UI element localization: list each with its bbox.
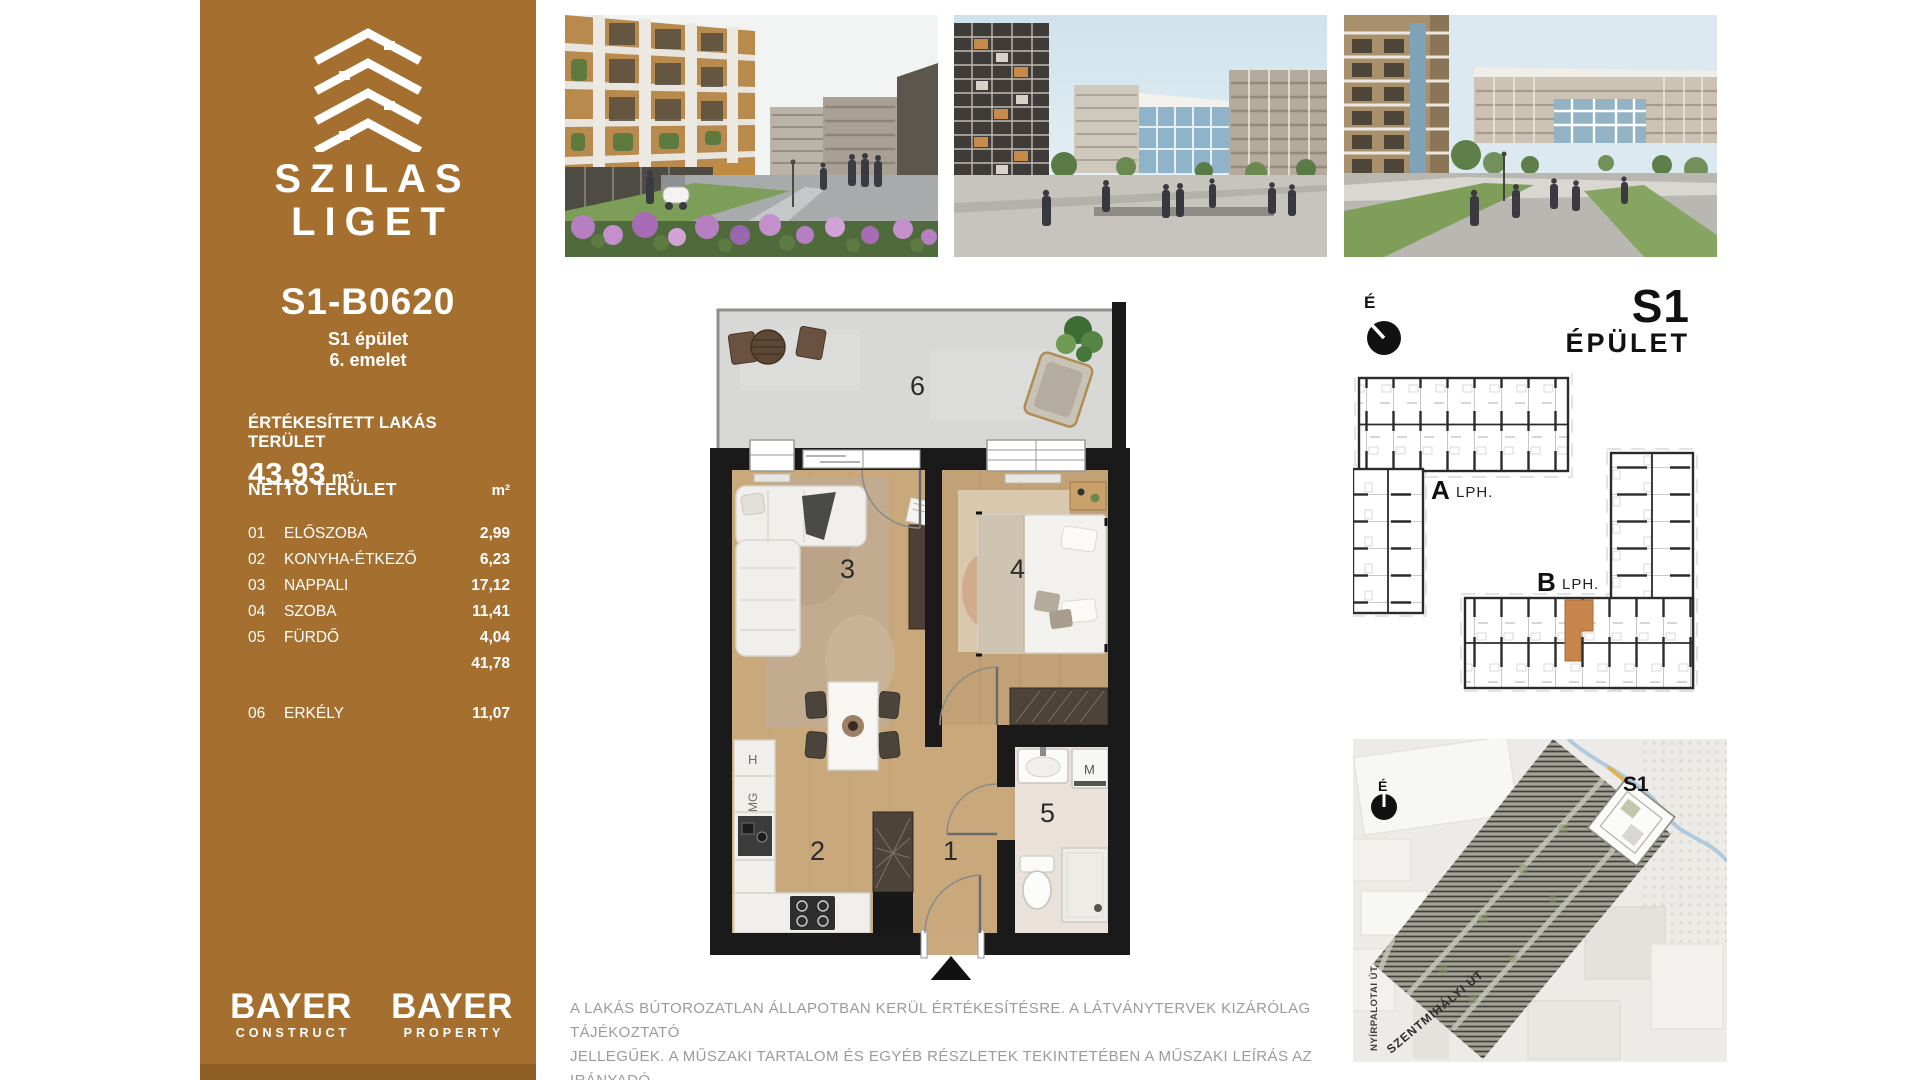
- wing-a-vertical: [1353, 469, 1423, 613]
- floor-line: 6. emelet: [200, 350, 536, 371]
- total-area: 41,78: [471, 655, 510, 673]
- table-total-row: 41,78: [248, 651, 510, 677]
- bedside-table: [1070, 482, 1106, 510]
- page-canvas: SZILAS LIGET S1-B0620 S1 épület 6. emele…: [0, 0, 1920, 1080]
- room-number-kitchen: 2: [810, 836, 825, 866]
- stove: [790, 896, 835, 930]
- washer-label: M: [1084, 762, 1095, 777]
- north-compass-icon: É: [1358, 290, 1410, 370]
- disclaimer-text: A LAKÁS BÚTOROZATLAN ÁLLAPOTBAN KERÜL ÉR…: [570, 997, 1360, 1080]
- room-name: NAPPALI: [284, 577, 471, 595]
- bathroom-sink: [1018, 747, 1068, 783]
- hall-wardrobe: [873, 812, 913, 933]
- logo-sub: PROPERTY: [379, 1026, 525, 1040]
- room-area: 2,99: [480, 525, 510, 543]
- room-number-bath: 5: [1040, 798, 1055, 828]
- brand-name: SZILAS LIGET: [200, 158, 536, 244]
- svg-text:A: A: [1431, 475, 1450, 505]
- disclaimer-line2: JELLEGŰEK. A MŰSZAKI TARTALOM ÉS EGYÉB R…: [570, 1045, 1360, 1080]
- building-line: S1 épület: [200, 329, 536, 350]
- room-num: 04: [248, 603, 284, 621]
- rendering-photo-2: [954, 15, 1327, 257]
- brand-line1: SZILAS: [200, 158, 536, 201]
- room-number-living: 3: [840, 554, 855, 584]
- room-name: ERKÉLY: [284, 705, 472, 723]
- table-row: 02 KONYHA-ÉTKEZŐ 6,23: [248, 547, 510, 573]
- table-row: 05 FÜRDŐ 4,04: [248, 625, 510, 651]
- rendering-photo-3: [1344, 15, 1717, 257]
- balcony-room: 6: [718, 310, 1116, 450]
- building-name-sub: ÉPÜLET: [1490, 328, 1690, 359]
- room-area: 6,23: [480, 551, 510, 569]
- stair-b-label: B LPH.: [1537, 567, 1599, 597]
- room-num: 01: [248, 525, 284, 543]
- site-map: S1 É NYÍRPALOTAI ÚT SZENTMIHÁLYI ÚT: [1353, 739, 1727, 1062]
- wing-a-horizontal: [1359, 378, 1568, 471]
- svg-text:LPH.: LPH.: [1456, 484, 1493, 501]
- chevron-roof-logo-icon: [307, 24, 429, 152]
- room-area: 11,07: [472, 705, 510, 723]
- unit-subtitle: S1 épület 6. emelet: [200, 329, 536, 371]
- room-name: KONYHA-ÉTKEZŐ: [284, 551, 480, 569]
- kitchen-sink-appliance: [738, 816, 772, 856]
- entrance-arrow-icon: [929, 956, 973, 980]
- sidebar: SZILAS LIGET S1-B0620 S1 épület 6. emele…: [200, 0, 536, 1080]
- street-label-nyirpalotai: NYÍRPALOTAI ÚT: [1368, 966, 1380, 1051]
- north-label: É: [1364, 293, 1375, 312]
- table-row: 04 SZOBA 11,41: [248, 599, 510, 625]
- table-row: 03 NAPPALI 17,12: [248, 573, 510, 599]
- bayer-property-logo: BAYER PROPERTY: [379, 992, 525, 1040]
- building-floorplan: A LPH. B LPH.: [1353, 373, 1728, 713]
- net-area-label: NETTÓ TERÜLET: [248, 479, 397, 500]
- room-num: 06: [248, 705, 284, 723]
- net-area-unit: m²: [492, 482, 510, 499]
- room-table: 01 ELŐSZOBA 2,99 02 KONYHA-ÉTKEZŐ 6,23 0…: [248, 521, 510, 727]
- room-number-bedroom: 4: [1010, 554, 1025, 584]
- room-number-hall: 1: [943, 836, 958, 866]
- logo-name: BAYER: [379, 992, 525, 1022]
- bayer-construct-logo: BAYER CONSTRUCT: [218, 992, 364, 1040]
- s1-site-label: S1: [1623, 773, 1649, 796]
- logo-name: BAYER: [218, 992, 364, 1022]
- logo-sub: CONSTRUCT: [218, 1026, 364, 1040]
- developer-logos: BAYER CONSTRUCT BAYER PROPERTY: [218, 992, 525, 1040]
- sold-area-label: ÉRTÉKESÍTETT LAKÁS TERÜLET: [248, 414, 510, 452]
- svg-text:É: É: [1378, 778, 1387, 794]
- stair-a-label: A LPH.: [1431, 475, 1493, 505]
- room-number-balcony: 6: [910, 371, 925, 401]
- building-name: S1: [1490, 286, 1690, 326]
- table-row-balcony: 06 ERKÉLY 11,07: [248, 701, 510, 727]
- net-area-header: NETTÓ TERÜLET m²: [248, 479, 510, 500]
- unit-id: S1-B0620: [200, 281, 536, 323]
- room-area: 11,41: [472, 603, 510, 621]
- room-num: 02: [248, 551, 284, 569]
- dishwasher-label: MG: [746, 793, 760, 812]
- brand-line2: LIGET: [200, 201, 536, 244]
- sidebar-footer-strip: [200, 1064, 536, 1080]
- fridge-label: H: [748, 752, 757, 767]
- room-num: 05: [248, 629, 284, 647]
- room-name: ELŐSZOBA: [284, 525, 480, 543]
- washing-machine: M: [1072, 749, 1108, 788]
- room-name: FÜRDŐ: [284, 629, 480, 647]
- svg-text:B: B: [1537, 567, 1556, 597]
- table-row: 01 ELŐSZOBA 2,99: [248, 521, 510, 547]
- glass-building: [1139, 93, 1229, 173]
- apartment-floorplan: 6: [710, 300, 1140, 980]
- disclaimer-line1: A LAKÁS BÚTOROZATLAN ÁLLAPOTBAN KERÜL ÉR…: [570, 997, 1360, 1045]
- shower: [1062, 848, 1108, 922]
- rendering-photo-1: [565, 15, 938, 257]
- svg-text:LPH.: LPH.: [1562, 576, 1599, 593]
- long-building: [1474, 67, 1717, 143]
- building-title: S1 ÉPÜLET: [1490, 286, 1690, 359]
- toilet: [1020, 856, 1054, 909]
- room-name: SZOBA: [284, 603, 472, 621]
- room-num: 03: [248, 577, 284, 595]
- room-area: 4,04: [480, 629, 510, 647]
- bed: [976, 513, 1106, 655]
- room-area: 17,12: [471, 577, 510, 595]
- bedroom-wardrobe: [1010, 688, 1108, 725]
